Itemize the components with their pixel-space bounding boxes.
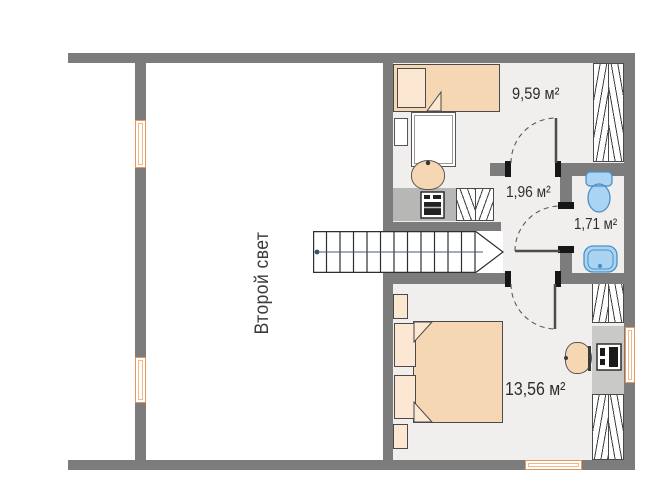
kitchen-counter [393,188,456,221]
area-label-hall: 1,96 м² [506,184,551,202]
wardrobe-bottom-right-lower [592,394,624,460]
wardrobe-bottom-right-upper [592,283,624,323]
wall-top [68,53,635,63]
desk-top-room [411,112,456,167]
jamb-bathroom-door-bottom [558,246,574,253]
wall-stairs-bottom [383,273,511,284]
wall-right [624,53,635,470]
desk-bottom-room [592,326,624,394]
wall-hall-top-right [556,163,625,176]
room-label-void: Второй свет [252,232,274,335]
area-label-bathroom: 1,71 м² [574,216,617,234]
nightstand-top [393,294,408,319]
floor-plan: Второй свет 9,59 м² 1,96 м² 1,71 м² 13,5… [0,0,658,502]
window-bottom [525,460,582,470]
area-label-bedroom-bottom: 13,56 м² [505,378,565,400]
jamb-bathroom-door-top [558,202,574,209]
window-left-upper [135,120,146,168]
double-bed-pillow-2 [394,375,416,419]
wall-center-lower [383,273,393,460]
double-bed-pillow-1 [394,323,416,367]
jamb-stairs-opening [495,231,501,246]
nightstand-bottom [393,424,408,449]
single-bed-pillow [397,68,426,108]
jamb-bedroom-top-door-left [505,161,511,177]
bedside-shelf [394,118,408,146]
wall-stairs-top [383,222,501,231]
jamb-bedroom-top-door-right [555,161,561,177]
window-right [625,327,635,383]
chair-top-room [411,160,445,190]
area-label-bedroom-top: 9,59 м² [512,84,559,104]
chair-bottom-room [565,342,592,374]
hatched-cabinet [456,188,494,221]
jamb-bedroom-bottom-door-right [555,271,561,287]
wardrobe-top-right [593,63,624,162]
wall-center-upper [383,62,393,231]
wall-left [135,53,146,470]
jamb-bedroom-bottom-door-left [505,271,511,287]
window-left-lower [135,357,146,403]
double-bed [413,321,503,423]
wall-bath-bottom [556,273,625,284]
